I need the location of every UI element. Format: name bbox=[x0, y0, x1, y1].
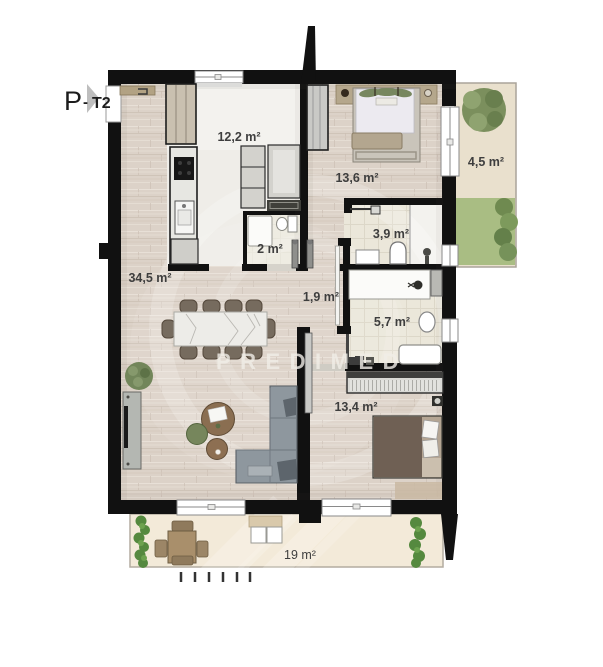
svg-text:P: P bbox=[64, 86, 82, 116]
svg-text:19 m²: 19 m² bbox=[284, 548, 316, 562]
svg-text:3,9 m²: 3,9 m² bbox=[373, 227, 409, 241]
svg-text:5,7 m²: 5,7 m² bbox=[374, 315, 410, 329]
svg-text:13,4 m²: 13,4 m² bbox=[334, 400, 377, 414]
svg-text:4,5 m²: 4,5 m² bbox=[468, 155, 504, 169]
svg-text:PREDIMED: PREDIMED bbox=[216, 349, 408, 374]
svg-text:13,6 m²: 13,6 m² bbox=[335, 171, 378, 185]
svg-text:2 m²: 2 m² bbox=[257, 242, 283, 256]
svg-text:1,9 m²: 1,9 m² bbox=[303, 290, 339, 304]
svg-text:-: - bbox=[83, 94, 88, 111]
svg-text:12,2 m²: 12,2 m² bbox=[217, 130, 260, 144]
svg-text:T2: T2 bbox=[92, 95, 111, 112]
svg-text:34,5 m²: 34,5 m² bbox=[128, 271, 171, 285]
